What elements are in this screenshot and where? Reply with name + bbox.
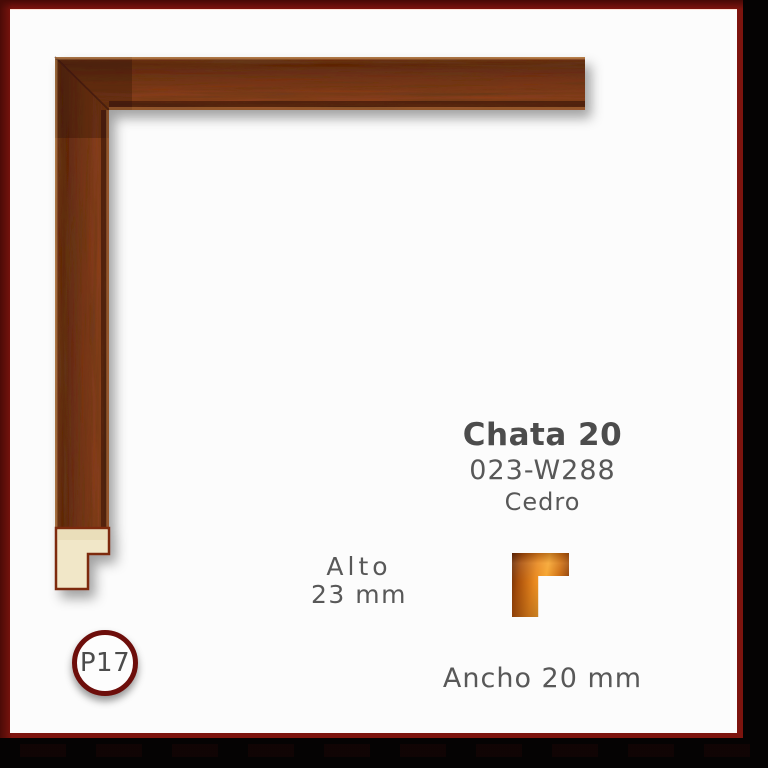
- cross-section-shading: [58, 530, 107, 540]
- profile-badge: P17: [72, 630, 138, 696]
- product-name: Chata 20: [430, 417, 655, 454]
- top-rail-lip: [109, 101, 585, 107]
- top-rail-lip-light: [109, 107, 585, 110]
- left-edge-highlight: [55, 60, 58, 529]
- product-info: Chata 20 023-W288 Cedro: [430, 417, 655, 517]
- width-spec: Ancho 20 mm: [425, 663, 660, 694]
- height-value: 23 mm: [278, 581, 440, 608]
- product-material: Cedro: [430, 487, 655, 517]
- height-spec: Alto 23 mm: [278, 553, 440, 608]
- height-label: Alto: [278, 553, 440, 581]
- product-code: 023-W288: [430, 454, 655, 487]
- left-rail-lip-light: [106, 110, 109, 529]
- product-card-stage: Chata 20 023-W288 Cedro Alto 23 mm Ancho…: [0, 0, 768, 768]
- profile-badge-label: P17: [80, 648, 130, 678]
- top-edge-highlight: [55, 57, 585, 60]
